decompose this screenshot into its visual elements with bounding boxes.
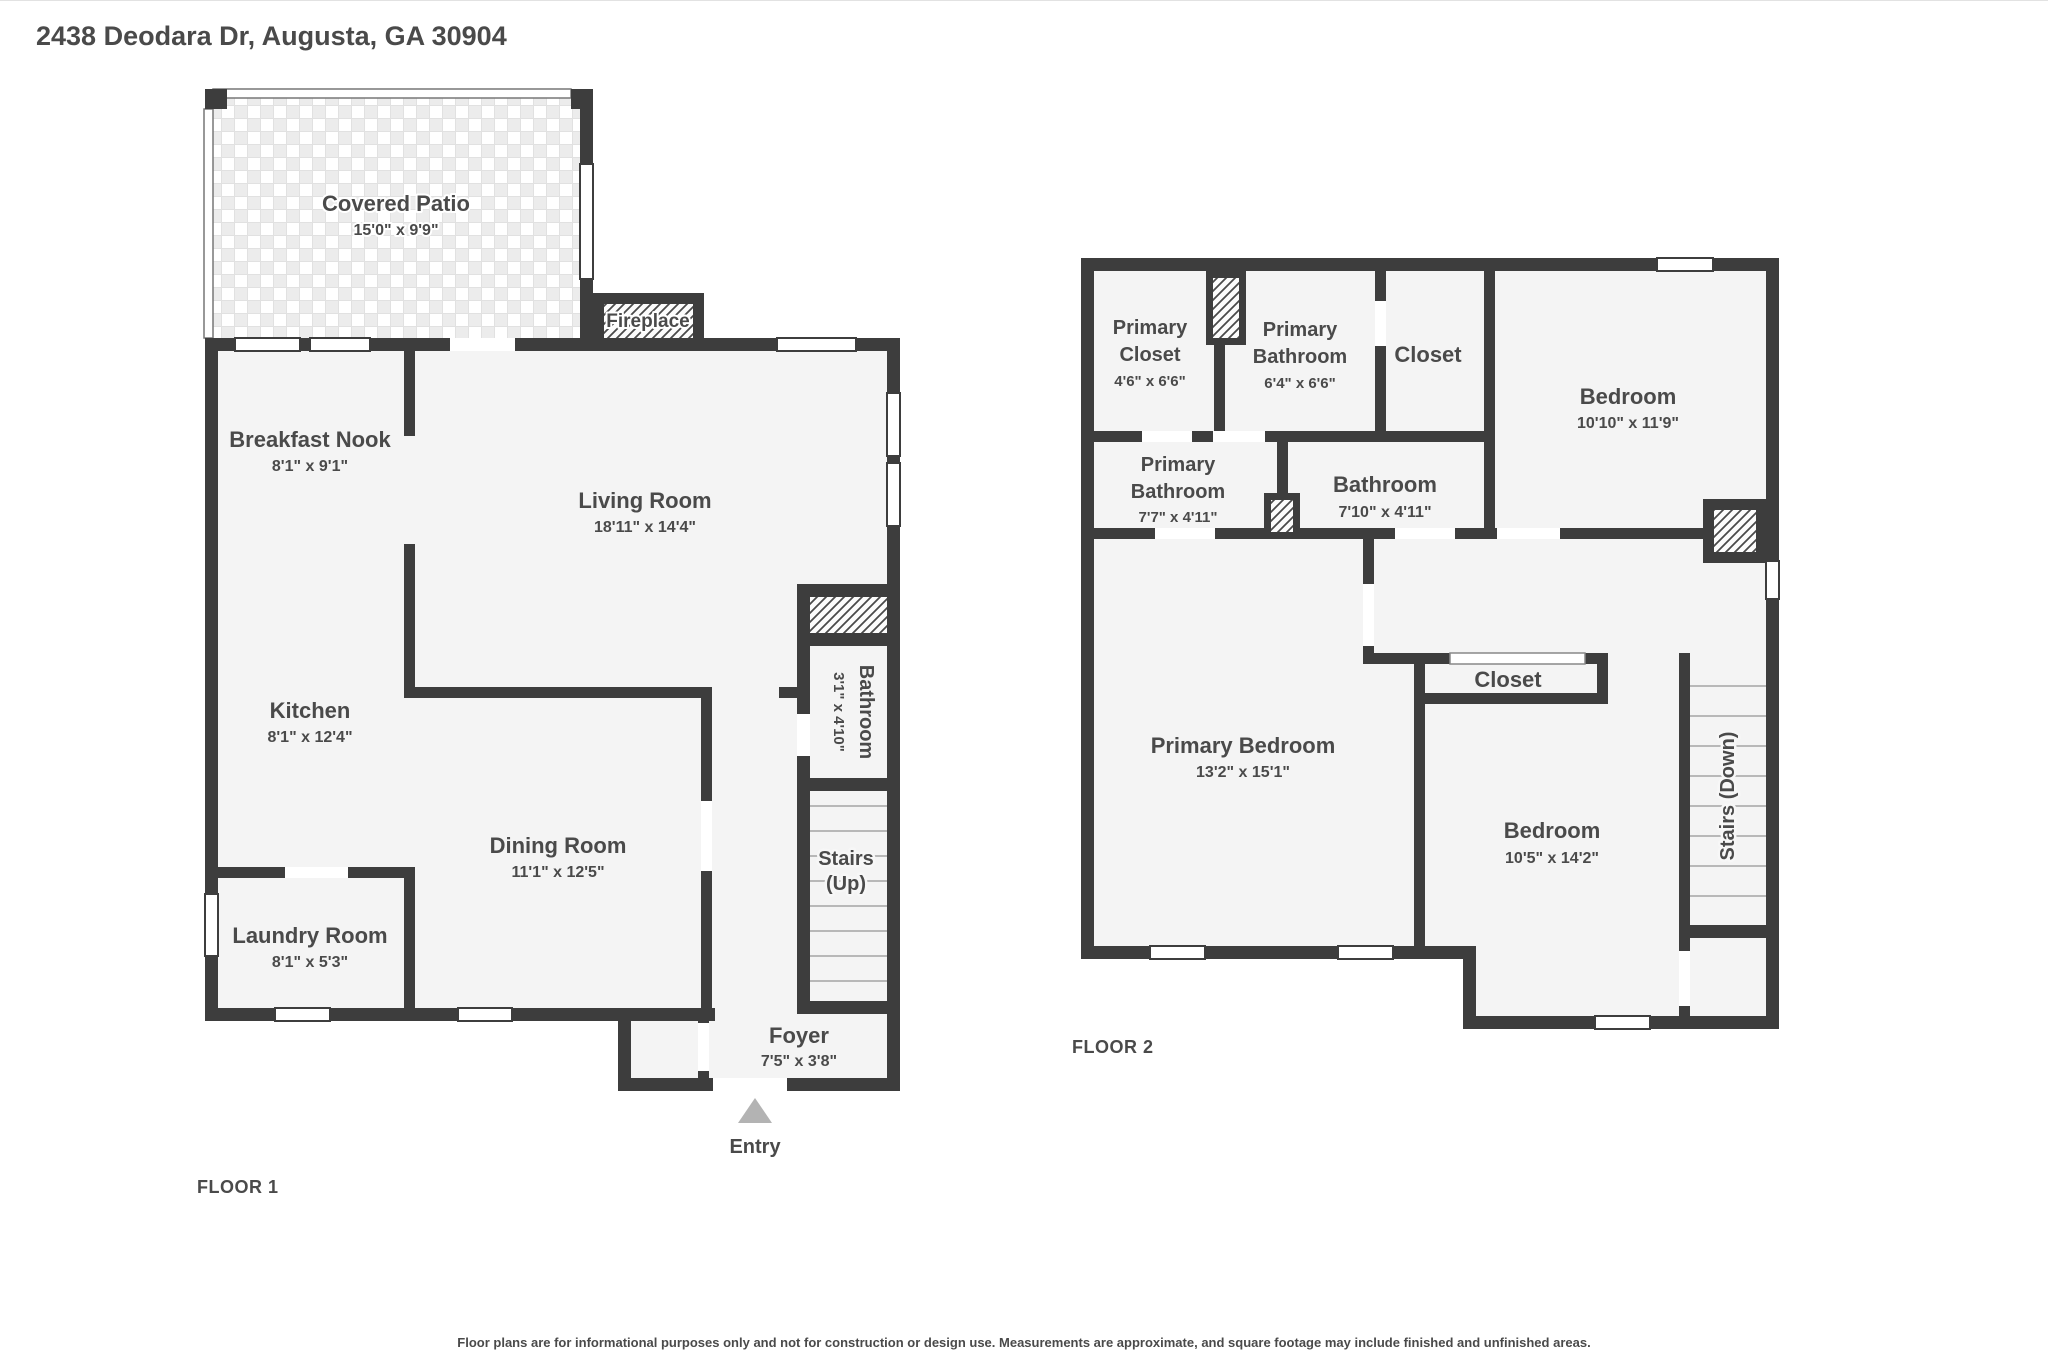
door-opening [285, 867, 348, 878]
room-label-closet-mid: Closet [1474, 667, 1542, 692]
window [458, 1008, 512, 1021]
room-label-primary-bathroom-upper-line1: Primary [1263, 319, 1338, 341]
room-dims-living-room: 18'11" x 14'4" [594, 519, 696, 536]
door-opening [713, 1078, 787, 1091]
window [235, 338, 300, 351]
room-dims-breakfast-nook: 8'1" x 9'1" [272, 458, 348, 475]
door-opening [797, 714, 810, 756]
window [1657, 258, 1713, 271]
room-label-bathroom-floor1: Bathroom [855, 665, 877, 759]
floor-plan-svg: Covered Patio 15'0" x 9'9" Fireplace Bre… [0, 1, 2048, 1366]
room-label-primary-closet-line1: Primary [1113, 317, 1188, 339]
door-opening [1213, 431, 1265, 442]
door-opening [1155, 528, 1215, 539]
room-dims-primary-closet: 4'6" x 6'6" [1114, 373, 1185, 390]
room-dims-primary-bathroom-upper: 6'4" x 6'6" [1264, 375, 1335, 392]
door-opening [1142, 431, 1192, 442]
hatch-box-primary-closet [1206, 271, 1246, 345]
room-label-foyer: Foyer [769, 1023, 829, 1048]
room-label-bedroom-upper: Bedroom [1580, 384, 1677, 409]
room-label-kitchen: Kitchen [270, 698, 351, 723]
page-title: 2438 Deodara Dr, Augusta, GA 30904 [36, 21, 507, 51]
room-dims-bedroom-lower: 10'5" x 14'2" [1505, 850, 1599, 867]
entry-label: Entry [729, 1136, 781, 1158]
window [1338, 946, 1393, 959]
room-dims-dining-room: 11'1" x 12'5" [511, 864, 604, 881]
door-opening [1375, 301, 1386, 346]
door-opening [1497, 528, 1560, 539]
room-dims-laundry-room: 8'1" x 5'3" [272, 954, 348, 971]
closet-bifold-door [1450, 653, 1585, 664]
window [777, 338, 856, 351]
room-dims-bedroom-upper: 10'10" x 11'9" [1577, 415, 1679, 432]
room-label-bedroom-lower: Bedroom [1504, 818, 1601, 843]
floor1-plan: Covered Patio 15'0" x 9'9" Fireplace Bre… [197, 89, 900, 1197]
room-dims-kitchen: 8'1" x 12'4" [267, 729, 352, 746]
room-label-primary-bathroom-line2: Bathroom [1131, 481, 1225, 503]
room-dims-foyer: 7'5" x 3'8" [761, 1053, 837, 1070]
room-label-bathroom-floor2: Bathroom [1333, 472, 1437, 497]
floor1-label: FLOOR 1 [197, 1177, 279, 1197]
room-label-stairs-up-direction: (Up) [826, 873, 866, 895]
door-opening [1363, 584, 1374, 646]
room-dims-bathroom-floor1: 3'1" x 4'10" [830, 672, 847, 752]
entry-arrow-icon [738, 1098, 772, 1123]
window [310, 338, 370, 351]
disclaimer: Floor plans are for informational purpos… [457, 1335, 1590, 1350]
room-label-fireplace: Fireplace [606, 311, 689, 332]
door-opening [1395, 528, 1455, 539]
room-dims-covered-patio: 15'0" x 9'9" [353, 222, 438, 239]
window [1150, 946, 1205, 959]
hatch-box-bathrooms [1264, 493, 1300, 539]
chimney-hatch-floor1 [810, 597, 887, 633]
floor2-plan: Primary Closet 4'6" x 6'6" Primary Bathr… [1072, 258, 1779, 1057]
room-label-primary-bedroom: Primary Bedroom [1151, 733, 1336, 758]
door-opening [1679, 951, 1690, 1006]
room-label-primary-closet-line2: Closet [1119, 344, 1180, 366]
window [1595, 1016, 1650, 1029]
window [887, 463, 900, 526]
room-label-stairs-up: Stairs [818, 848, 874, 870]
room-label-dining-room: Dining Room [490, 833, 627, 858]
door-opening [701, 801, 712, 871]
room-label-breakfast-nook: Breakfast Nook [229, 427, 391, 452]
room-label-primary-bathroom-upper-line2: Bathroom [1253, 346, 1347, 368]
window [205, 894, 218, 956]
room-label-stairs-down: Stairs (Down) [1717, 732, 1739, 861]
room-label-covered-patio: Covered Patio [322, 191, 470, 216]
room-label-primary-bathroom-line1: Primary [1141, 454, 1216, 476]
window [275, 1008, 330, 1021]
room-label-closet-upper: Closet [1394, 342, 1462, 367]
room-dims-primary-bathroom: 7'7" x 4'11" [1139, 509, 1218, 526]
floor2-label: FLOOR 2 [1072, 1037, 1154, 1057]
room-dims-primary-bedroom: 13'2" x 15'1" [1196, 764, 1290, 781]
chimney-hatch-floor2 [1703, 499, 1767, 563]
room-label-living-room: Living Room [578, 488, 711, 513]
covered-patio-floor [212, 97, 580, 338]
window [580, 164, 593, 279]
room-label-laundry-room: Laundry Room [232, 923, 387, 948]
room-dims-bathroom-floor2: 7'10" x 4'11" [1338, 504, 1431, 521]
window [887, 393, 900, 456]
door-opening [450, 338, 515, 351]
window [1766, 561, 1779, 599]
floor-plan-page: Covered Patio 15'0" x 9'9" Fireplace Bre… [0, 0, 2048, 1366]
door-opening [698, 1023, 709, 1071]
